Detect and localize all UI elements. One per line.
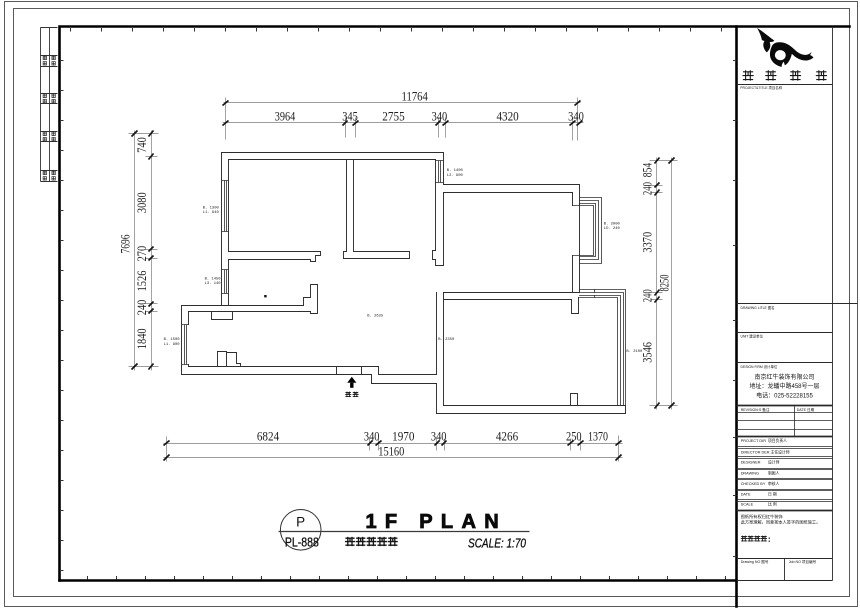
svg-text:DRAWING LITLE 图名: DRAWING LITLE 图名: [741, 305, 775, 310]
svg-text:LD. 240: LD. 240: [604, 227, 621, 231]
svg-text:此方案理解，同意按本人签字的图纸施工。: 此方案理解，同意按本人签字的图纸施工。: [741, 519, 821, 526]
svg-text:1840: 1840: [135, 328, 149, 349]
svg-text:PROJECT DIR: PROJECT DIR: [741, 439, 767, 443]
svg-text:1970: 1970: [392, 430, 414, 444]
svg-text:1526: 1526: [135, 271, 149, 292]
svg-text:日 期: 日 期: [768, 492, 777, 497]
svg-text:3370: 3370: [641, 232, 655, 253]
svg-text:240: 240: [135, 300, 149, 316]
svg-text:L1. 940: L1. 940: [203, 211, 220, 215]
svg-text:L2. 900: L2. 900: [447, 174, 464, 178]
svg-text:7696: 7696: [118, 235, 132, 254]
svg-text:B. 2625: B. 2625: [367, 315, 384, 319]
svg-text:比 例: 比 例: [768, 502, 777, 507]
svg-text:B. 1450: B. 1450: [205, 277, 222, 281]
svg-text:DRAWING: DRAWING: [741, 471, 759, 475]
svg-text:地址：龙蟠中路458号一层: 地址：龙蟠中路458号一层: [749, 382, 819, 390]
svg-text:电话：025-52228155: 电话：025-52228155: [756, 391, 813, 399]
svg-text:UNIT 建设单位: UNIT 建设单位: [741, 334, 764, 339]
svg-text:B. 1300: B. 1300: [203, 206, 220, 210]
svg-text:审核人: 审核人: [768, 481, 780, 486]
svg-text:设计师: 设计师: [768, 460, 780, 465]
svg-text:1F PLAN: 1F PLAN: [366, 511, 507, 533]
svg-text:2755: 2755: [382, 110, 404, 124]
svg-text:PL-888: PL-888: [285, 534, 319, 549]
svg-text:Job NO 项目编号: Job NO 项目编号: [789, 559, 817, 564]
svg-text:240: 240: [641, 182, 655, 195]
svg-text:PROJECT&TITLE 项目名称: PROJECT&TITLE 项目名称: [740, 85, 782, 90]
svg-text:3964: 3964: [275, 110, 296, 124]
svg-text:SCALE: SCALE: [741, 503, 754, 507]
svg-text:L1. 900: L1. 900: [164, 343, 181, 347]
svg-text:4320: 4320: [496, 110, 518, 124]
svg-text:240: 240: [641, 289, 655, 302]
svg-text:3080: 3080: [135, 192, 149, 213]
svg-text:CHECKED BY: CHECKED BY: [741, 482, 766, 486]
svg-text:8250: 8250: [657, 275, 671, 292]
svg-text:854: 854: [641, 163, 655, 177]
svg-text:340: 340: [568, 110, 584, 124]
svg-text:B. 2000: B. 2000: [604, 222, 621, 226]
svg-text:B. 1500: B. 1500: [164, 338, 181, 342]
svg-text:15160: 15160: [378, 444, 404, 458]
svg-text:L3. 140: L3. 140: [205, 282, 222, 286]
svg-text:340: 340: [364, 430, 380, 444]
svg-text:制图人: 制图人: [768, 470, 780, 475]
svg-text:345: 345: [342, 110, 358, 124]
svg-text:DESIGN FIRM 设计单位: DESIGN FIRM 设计单位: [741, 364, 778, 369]
svg-text:340: 340: [432, 110, 448, 124]
svg-text:REVISION:S 备注: REVISION:S 备注: [741, 407, 770, 412]
svg-text:3546: 3546: [641, 342, 655, 363]
svg-text:270: 270: [135, 246, 149, 262]
svg-text:B. 2350: B. 2350: [438, 338, 455, 342]
svg-text:项目负责人: 项目负责人: [768, 438, 787, 443]
svg-text:740: 740: [135, 137, 149, 153]
svg-text:250: 250: [566, 430, 582, 444]
svg-text:DATE 日期: DATE 日期: [797, 407, 815, 412]
svg-text:1370: 1370: [588, 430, 608, 444]
svg-text:4266: 4266: [496, 430, 518, 444]
svg-text:DESIGNER: DESIGNER: [741, 461, 761, 465]
svg-text:南京红牛装饰有限公司: 南京红牛装饰有限公司: [754, 373, 814, 381]
svg-text:B. 1400: B. 1400: [447, 169, 464, 173]
svg-text:6824: 6824: [257, 430, 279, 444]
svg-text:11764: 11764: [402, 89, 428, 103]
svg-text:DATE: DATE: [741, 493, 751, 497]
svg-text:340: 340: [431, 430, 447, 444]
svg-text:P: P: [296, 515, 305, 530]
svg-text:Drawing NO 图号: Drawing NO 图号: [741, 559, 769, 564]
svg-text:SCALE: 1:70: SCALE: 1:70: [468, 537, 526, 551]
svg-text:DIRECTOR DER 主任设计师: DIRECTOR DER 主任设计师: [741, 450, 790, 455]
